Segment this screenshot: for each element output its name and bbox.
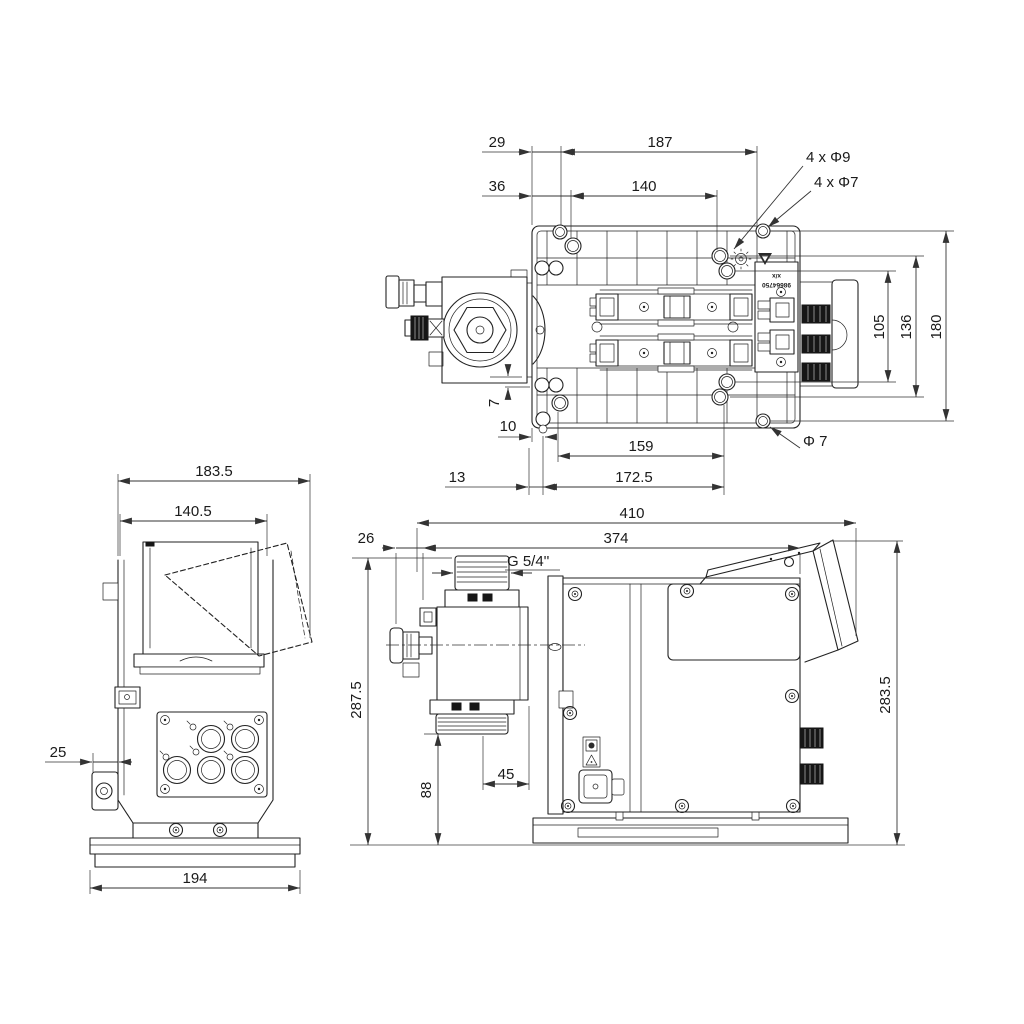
callout-4xdia7: 4 x Φ7 [768,174,859,227]
dim-label-140-5: 140.5 [174,503,212,520]
knurled-knob-top-view [405,316,444,340]
callout-dia7: Φ 7 [770,427,827,450]
dim-label-25: 25 [50,744,67,761]
panel-button [785,558,794,567]
cable-gland-top [386,276,442,308]
plate-label-number: 98664750 [762,281,791,288]
dim-label-26: 26 [358,530,375,547]
dim-label-10: 10 [500,418,517,435]
dim-label-183-5: 183.5 [195,463,233,480]
drain-port [429,352,443,366]
flow-control-housing-top [800,280,858,388]
connector-panel: x/x 98664750 [755,262,798,372]
dim-label-194: 194 [182,870,207,887]
dim-label-thread: G 5/4'' [507,553,550,570]
plate-label-xx: x/x [772,272,781,279]
discharge-thread [455,556,509,590]
suction-thread [430,700,514,734]
valve-face-plate [157,712,267,797]
dim-label-140: 140 [631,178,656,195]
pump-head-top [386,270,532,383]
dim-label-172-5: 172.5 [615,469,653,486]
dim-label-105: 105 [871,314,888,339]
dim-label-159: 159 [628,438,653,455]
dim-label-374: 374 [603,530,628,547]
dim-label-dia7: Φ 7 [803,433,827,450]
knurled-knobs-right [802,305,830,381]
dim-label-187: 187 [647,134,672,151]
front-view: 410 26 374 G 5/4'' 287.5 88 45 283.5 [348,505,905,845]
pedestal-and-base [90,823,300,867]
cable-gland-front [390,608,436,677]
motor-housing-front [548,576,823,814]
dim-label-4xdia9: 4 x Φ9 [806,149,851,166]
dim-label-136: 136 [898,314,915,339]
side-knobs [800,728,823,784]
dim-label-180: 180 [928,314,945,339]
technical-drawing-page: x/x 98664750 [0,0,1024,1024]
dim-label-45: 45 [498,766,515,783]
dim-label-410: 410 [619,505,644,522]
keyhole-slot-bottom [536,412,550,433]
dim-label-88: 88 [418,782,435,799]
top-view: x/x 98664750 [386,134,954,495]
dim-label-4xdia7: 4 x Φ7 [814,174,859,191]
control-box-side [134,542,264,674]
dim-label-283-5: 283.5 [877,676,894,714]
dim-label-13: 13 [449,469,466,486]
dim-label-7: 7 [486,399,503,407]
dim-label-287-5: 287.5 [348,681,365,719]
left-side-view: 183.5 140.5 25 194 [45,463,312,894]
wall-bracket [92,772,118,810]
dim-label-29: 29 [489,134,506,151]
dim-label-36: 36 [489,178,506,195]
dimensional-drawing: x/x 98664750 [0,0,1024,1024]
